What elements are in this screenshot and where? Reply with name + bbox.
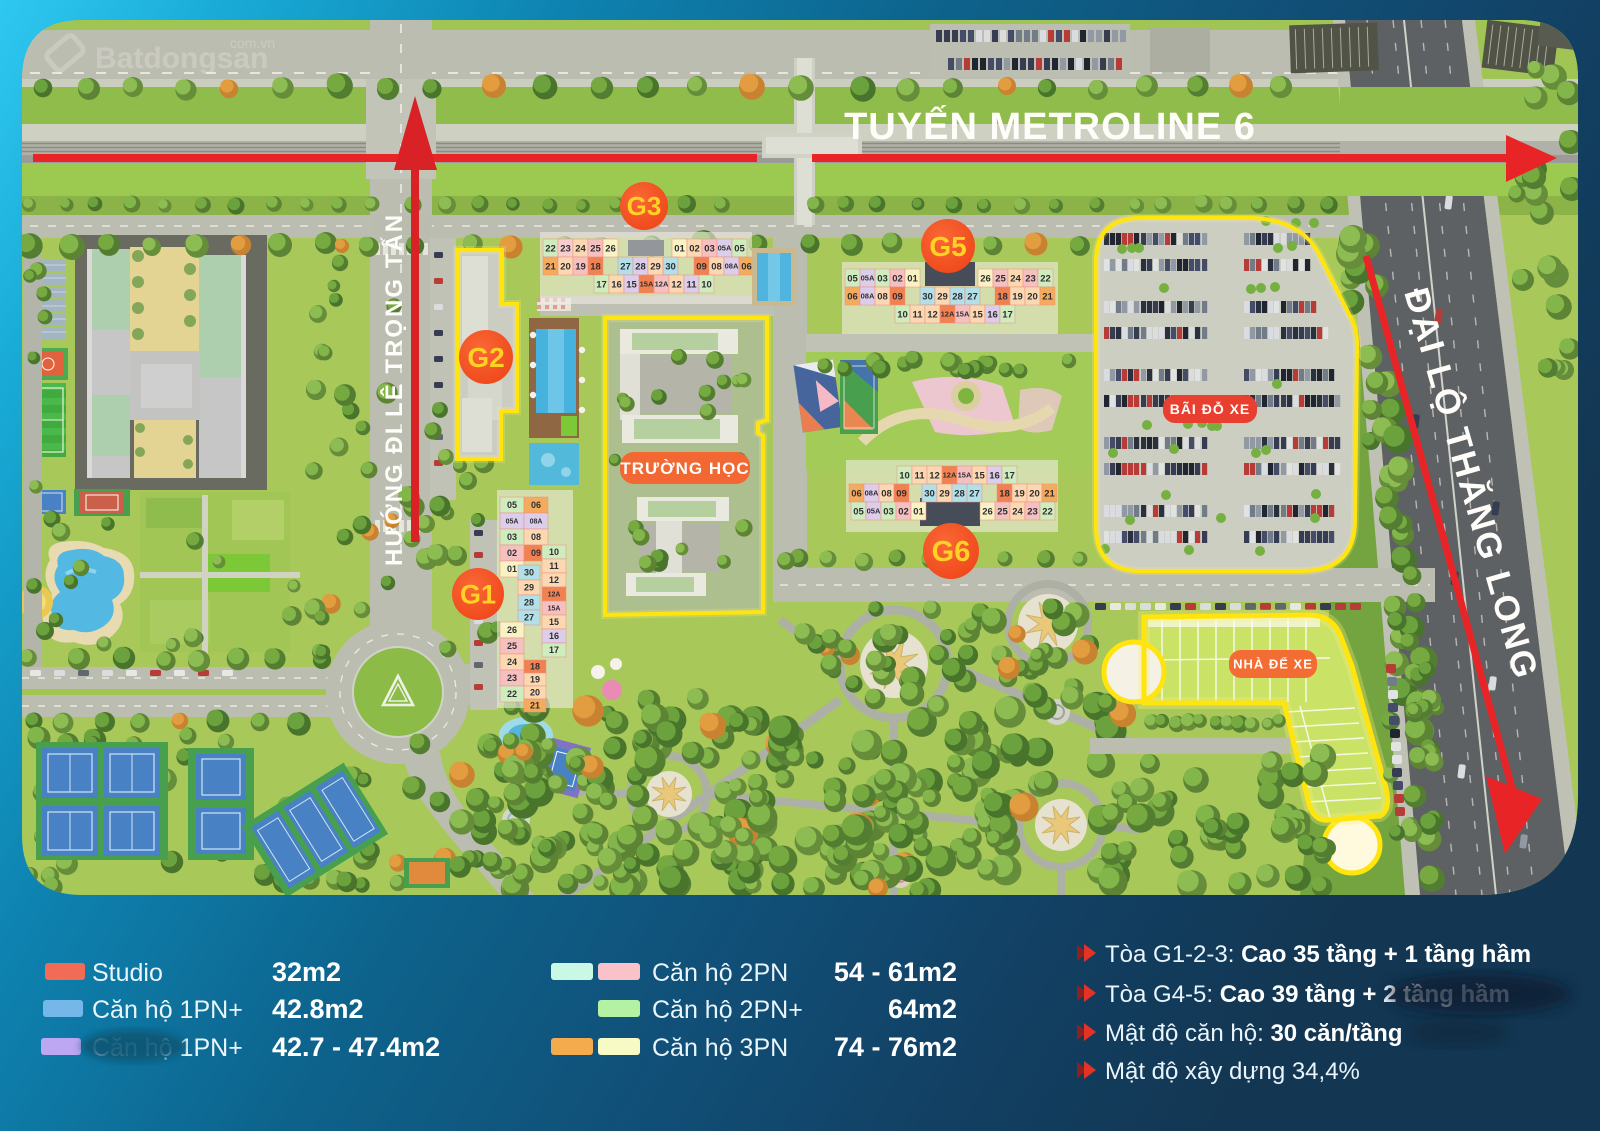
svg-text:54 - 61m2: 54 - 61m2 xyxy=(834,957,957,987)
svg-text:Studio: Studio xyxy=(92,959,163,987)
svg-text:Mật độ căn hộ: 30 căn/tầng: Mật độ căn hộ: 30 căn/tầng xyxy=(1105,1020,1402,1047)
svg-text:Căn hộ 3PN: Căn hộ 3PN xyxy=(652,1034,788,1062)
svg-text:64m2: 64m2 xyxy=(888,994,957,1024)
svg-text:Tòa G1-2-3: Cao 35 tầng + 1 tầ: Tòa G1-2-3: Cao 35 tầng + 1 tầng hầm xyxy=(1105,941,1531,968)
svg-text:74 - 76m2: 74 - 76m2 xyxy=(834,1032,957,1062)
svg-text:Căn hộ 1PN+: Căn hộ 1PN+ xyxy=(92,996,243,1024)
svg-text:Căn hộ 2PN: Căn hộ 2PN xyxy=(652,959,788,987)
svg-text:32m2: 32m2 xyxy=(272,957,341,987)
svg-text:Mật độ xây dựng 34,4%: Mật độ xây dựng 34,4% xyxy=(1105,1058,1360,1085)
svg-text:42.7 - 47.4m2: 42.7 - 47.4m2 xyxy=(272,1032,440,1062)
svg-text:Căn hộ 2PN+: Căn hộ 2PN+ xyxy=(652,996,803,1024)
svg-text:42.8m2: 42.8m2 xyxy=(272,994,364,1024)
